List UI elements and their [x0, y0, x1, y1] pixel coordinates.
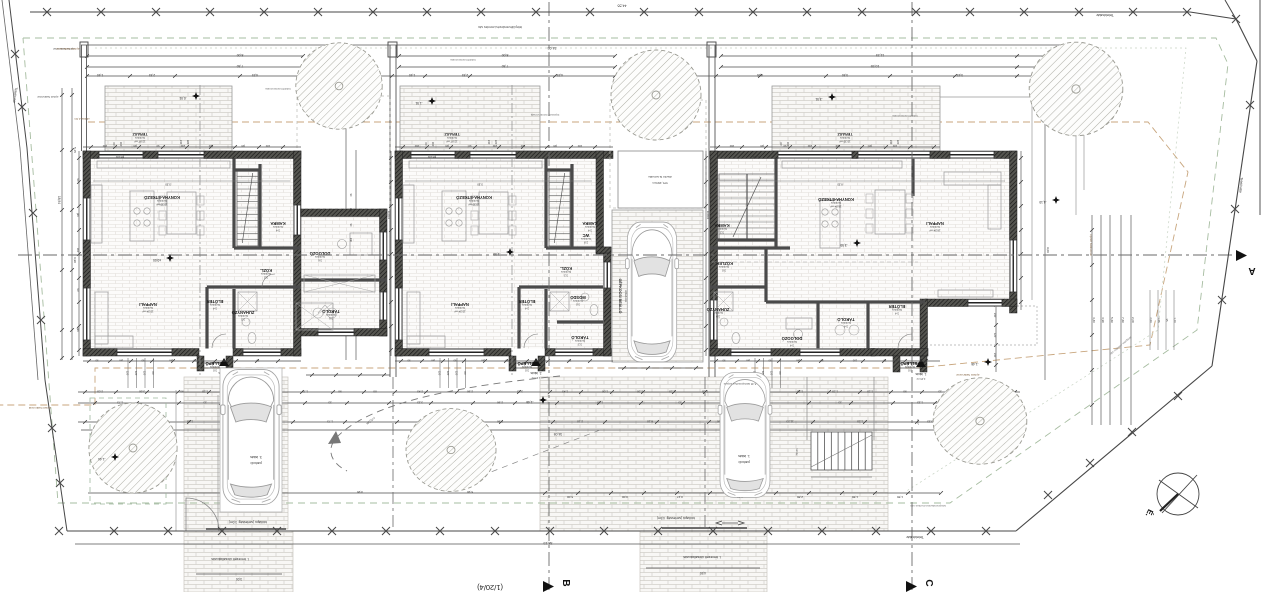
svg-text:1. lakás: 1. lakás [915, 372, 926, 376]
svg-text:tolókapu (szélesség: 4,5m): tolókapu (szélesség: 4,5m) [657, 516, 695, 520]
svg-text:11,25: 11,25 [786, 420, 794, 424]
svg-text:1,00: 1,00 [602, 390, 608, 394]
svg-text:felülről kontúrvonala: felülről kontúrvonala [265, 87, 290, 91]
svg-text:felülről kontúrvonala: felülről kontúrvonala [450, 58, 475, 62]
svg-text:2,00: 2,00 [1131, 317, 1135, 323]
svg-text:150: 150 [455, 371, 459, 376]
svg-text:12,87 m²: 12,87 m² [134, 140, 145, 144]
svg-text:15,54 m²: 15,54 m² [454, 310, 465, 314]
svg-text:6,90: 6,90 [73, 257, 77, 263]
svg-text:2.8: 2.8 [584, 241, 588, 245]
svg-text:1,20: 1,20 [1173, 317, 1177, 323]
svg-text:9,06: 9,06 [1046, 247, 1050, 253]
svg-text:240: 240 [179, 140, 183, 145]
svg-text:pm: pm [760, 144, 764, 147]
svg-text:150: 150 [126, 371, 130, 376]
svg-text:100: 100 [577, 144, 582, 148]
svg-text:kerítés: kerítés [387, 211, 391, 220]
svg-text:35: 35 [1165, 319, 1169, 322]
svg-text:34,05: 34,05 [554, 432, 563, 436]
svg-text:35: 35 [203, 401, 207, 405]
svg-text:felülről kontúrvonala: felülről kontúrvonala [892, 114, 917, 118]
svg-text:1,75: 1,75 [117, 401, 123, 405]
svg-text:2,05: 2,05 [97, 390, 103, 394]
svg-text:35: 35 [938, 390, 942, 394]
svg-text:180: 180 [852, 359, 857, 363]
svg-text:3,00: 3,00 [236, 577, 242, 581]
svg-text:6,17: 6,17 [916, 419, 920, 425]
svg-text:épített határvonal: épített határvonal [28, 406, 51, 410]
svg-text:90: 90 [180, 390, 184, 394]
svg-text:épített határvonal: épített határvonal [37, 95, 58, 99]
svg-text:3,30: 3,30 [842, 73, 848, 77]
svg-text:eltolás+4,0m: eltolás+4,0m [74, 117, 90, 121]
svg-text:pm: pm [119, 359, 123, 362]
svg-text:6,10: 6,10 [647, 420, 653, 424]
svg-text:160: 160 [119, 142, 123, 147]
svg-text:160: 160 [76, 248, 80, 253]
svg-text:2,45: 2,45 [417, 390, 423, 394]
svg-text:240: 240 [349, 208, 352, 213]
svg-text:-1,44: -1,44 [98, 457, 105, 461]
svg-text:-4,10: -4,10 [1039, 200, 1046, 204]
svg-text:TERASZ: TERASZ [444, 132, 460, 136]
svg-text:-3,51: -3,51 [815, 97, 822, 101]
svg-text:-1,46: -1,46 [971, 362, 978, 366]
svg-text:5,30: 5,30 [477, 183, 483, 187]
svg-text:150: 150 [143, 371, 147, 376]
svg-text:3.2: 3.2 [564, 274, 568, 278]
svg-text:parkoló: parkoló [250, 461, 261, 465]
svg-text:3.0: 3.0 [716, 315, 720, 319]
svg-text:C: C [923, 579, 934, 586]
svg-text:220: 220 [896, 140, 900, 145]
svg-text:4,25: 4,25 [557, 73, 563, 77]
svg-text:-0,01: -0,01 [179, 96, 186, 100]
svg-text:3.0: 3.0 [908, 369, 912, 373]
svg-text:3.0: 3.0 [722, 269, 726, 273]
svg-text:3.0: 3.0 [525, 369, 529, 373]
svg-text:pm: pm [553, 144, 557, 147]
svg-text:13,30 m²: 13,30 m² [156, 203, 167, 207]
svg-text:3.4: 3.4 [588, 229, 592, 233]
svg-text:2,35: 2,35 [462, 73, 468, 77]
svg-text:2,90: 2,90 [497, 401, 503, 405]
svg-text:12,87 m²: 12,87 m² [446, 140, 457, 144]
svg-text:3.0: 3.0 [576, 303, 580, 307]
svg-text:I. tervezett útcsatlakozás: I. tervezett útcsatlakozás [211, 557, 249, 561]
svg-text:TERASZ: TERASZ [132, 132, 148, 136]
svg-text:pm 100: pm 100 [427, 155, 436, 158]
svg-text:240: 240 [487, 140, 491, 145]
svg-text:35: 35 [838, 401, 842, 405]
svg-text:3.0: 3.0 [213, 369, 217, 373]
svg-text:2,85: 2,85 [797, 495, 803, 499]
svg-text:1,35 m²: 1,35 m² [531, 376, 540, 380]
svg-text:1,55: 1,55 [832, 390, 838, 394]
svg-text:pm 100: pm 100 [752, 155, 761, 158]
svg-text:160: 160 [431, 142, 435, 147]
svg-text:220: 220 [494, 140, 498, 145]
svg-text:3.6: 3.6 [329, 317, 333, 321]
svg-text:A: A [1248, 265, 1255, 276]
svg-text:7,30: 7,30 [502, 64, 509, 68]
svg-text:3.4: 3.4 [895, 312, 899, 316]
svg-text:240: 240 [993, 313, 997, 318]
svg-text:3,00: 3,00 [622, 495, 628, 499]
svg-text:4,40: 4,40 [1092, 317, 1096, 323]
svg-text:220: 220 [186, 140, 190, 145]
svg-text:GÉPKOCSI BEÁLLÓ: GÉPKOCSI BEÁLLÓ [618, 279, 623, 314]
svg-text:3.2: 3.2 [720, 231, 724, 235]
svg-text:120: 120 [993, 333, 997, 338]
svg-text:3.4: 3.4 [525, 307, 529, 311]
svg-text:1. lakás: 1. lakás [738, 454, 750, 458]
svg-text:3,17: 3,17 [677, 495, 683, 499]
svg-text:pm: pm [76, 213, 79, 217]
svg-text:1,05: 1,05 [1157, 317, 1161, 323]
svg-text:3.4: 3.4 [844, 325, 848, 329]
svg-text:diszíto fa temelde: diszíto fa temelde [648, 175, 672, 179]
svg-text:3,45: 3,45 [957, 73, 963, 77]
svg-text:1,35: 1,35 [202, 390, 208, 394]
svg-text:B: B [560, 579, 571, 586]
svg-text:38,15: 38,15 [544, 541, 553, 545]
svg-text:pm: pm [169, 359, 173, 362]
svg-text:teleprendezési-mentes sáv: teleprendezési-mentes sáv [910, 504, 946, 508]
svg-text:5,60: 5,60 [1110, 317, 1114, 323]
svg-text:575, Ø15cm: 575, Ø15cm [652, 181, 668, 185]
svg-text:3.6: 3.6 [318, 259, 322, 263]
svg-text:-1,46: -1,46 [526, 400, 533, 404]
svg-text:2. lakás: 2. lakás [530, 371, 541, 375]
svg-text:240: 240 [492, 144, 497, 148]
svg-text:pm: pm [241, 144, 245, 147]
svg-text:pm 100: pm 100 [115, 155, 124, 158]
svg-text:35: 35 [328, 401, 332, 405]
svg-text:pm: pm [868, 144, 872, 147]
svg-text:2,90: 2,90 [467, 390, 473, 394]
svg-text:1,55: 1,55 [857, 420, 863, 424]
svg-text:8,00: 8,00 [237, 53, 244, 57]
svg-text:44,55: 44,55 [618, 4, 627, 8]
svg-text:98: 98 [338, 390, 342, 394]
svg-text:160: 160 [102, 144, 107, 148]
svg-text:35: 35 [678, 401, 682, 405]
svg-text:11,25: 11,25 [876, 53, 884, 57]
svg-text:3.2: 3.2 [264, 276, 268, 280]
svg-text:1,55: 1,55 [852, 495, 858, 499]
svg-text:építési határvonal: építési határvonal [56, 47, 79, 51]
svg-text:3.4: 3.4 [790, 344, 794, 348]
svg-text:15,54 m²: 15,54 m² [142, 310, 153, 314]
svg-text:3,60: 3,60 [139, 390, 145, 394]
svg-text:240: 240 [889, 140, 893, 145]
svg-text:3,25: 3,25 [417, 401, 423, 405]
svg-text:240: 240 [349, 238, 352, 243]
svg-text:240: 240 [993, 353, 997, 358]
svg-text:3. lakás: 3. lakás [250, 455, 262, 459]
svg-text:I. tervezett útcsatlakozás: I. tervezett útcsatlakozás [683, 555, 721, 559]
svg-text:TERASZ: TERASZ [837, 132, 853, 136]
svg-text:3.2: 3.2 [241, 318, 245, 322]
svg-text:8,00: 8,00 [502, 53, 509, 57]
svg-text:3.4: 3.4 [276, 229, 280, 233]
svg-text:2,00: 2,00 [1149, 317, 1153, 323]
svg-text:150: 150 [770, 371, 774, 376]
svg-text:13,30 m²: 13,30 m² [468, 203, 479, 207]
svg-text:240: 240 [180, 144, 185, 148]
svg-text:Telekhatár: Telekhatár [1096, 13, 1114, 17]
svg-text:tornác: tornác [795, 448, 799, 456]
svg-text:pm: pm [746, 359, 750, 362]
svg-text:7,60: 7,60 [1121, 317, 1125, 323]
svg-text:100: 100 [265, 144, 270, 148]
svg-text:15,35 m²: 15,35 m² [839, 140, 850, 144]
svg-text:240: 240 [807, 144, 812, 148]
svg-text:150: 150 [438, 371, 442, 376]
svg-text:160: 160 [786, 142, 790, 147]
svg-text:8,35: 8,35 [837, 183, 843, 187]
svg-text:160: 160 [729, 144, 734, 148]
svg-text:1,40: 1,40 [409, 73, 415, 77]
svg-text:-1,51: -1,51 [415, 101, 422, 105]
svg-text:120: 120 [134, 371, 138, 376]
svg-text:4,90: 4,90 [1101, 317, 1105, 323]
svg-text:épített határvonal: épített határvonal [1089, 234, 1093, 256]
svg-text:120: 120 [446, 371, 450, 376]
svg-text:1,40: 1,40 [97, 73, 103, 77]
svg-text:16,84 m²: 16,84 m² [830, 205, 841, 209]
svg-text:pm: pm [481, 359, 485, 362]
svg-text:1,75: 1,75 [327, 420, 333, 424]
svg-text:pm: pm [445, 144, 449, 147]
svg-text:3.2: 3.2 [578, 343, 582, 347]
svg-text:-3,50: -3,50 [840, 243, 847, 247]
svg-text:3.4: 3.4 [213, 307, 217, 311]
svg-text:településrendezési-mentes sáv: településrendezési-mentes sáv [478, 25, 522, 29]
svg-text:2,35: 2,35 [149, 73, 155, 77]
svg-text:építési határvonal: építési határvonal [956, 373, 979, 377]
svg-text:1,05: 1,05 [702, 390, 708, 394]
svg-text:1,55: 1,55 [897, 495, 903, 499]
svg-text:2,10: 2,10 [577, 420, 583, 424]
svg-text:4,50: 4,50 [700, 571, 706, 575]
svg-text:5,00: 5,00 [567, 495, 573, 499]
svg-text:5,45 lakóépülethez képest: 5,45 lakóépülethez képest [724, 382, 757, 386]
svg-text:-1,50: -1,50 [493, 252, 500, 256]
svg-text:lopostélyi kontúrvonala: lopostélyi kontúrvonala [530, 113, 559, 117]
svg-text:18,54 m²: 18,54 m² [929, 229, 940, 233]
svg-text:5,90: 5,90 [467, 490, 473, 494]
svg-text:2,45 m²: 2,45 m² [916, 377, 925, 381]
svg-text:10,55: 10,55 [871, 64, 880, 68]
svg-text:80: 80 [373, 390, 377, 394]
svg-text:kerítés: kerítés [706, 211, 710, 220]
svg-text:±0,00: ±0,00 [153, 258, 161, 262]
svg-text:(1/20/4): (1/20/4) [477, 583, 503, 592]
svg-text:1,45: 1,45 [562, 390, 568, 394]
svg-text:5,30: 5,30 [165, 183, 171, 187]
svg-text:100: 100 [892, 144, 897, 148]
svg-text:tolókapu (szélesség: 3,0m): tolókapu (szélesség: 3,0m) [229, 520, 267, 524]
svg-text:1,25: 1,25 [917, 401, 923, 405]
svg-text:180: 180 [225, 359, 230, 363]
svg-text:pm: pm [796, 359, 800, 362]
svg-text:1,35: 1,35 [867, 390, 873, 394]
svg-text:pm: pm [133, 144, 137, 147]
svg-text:pm: pm [76, 328, 79, 332]
svg-text:90: 90 [903, 390, 907, 394]
svg-text:3,25: 3,25 [927, 420, 933, 424]
svg-text:pm: pm [431, 359, 435, 362]
svg-text:180: 180 [537, 359, 542, 363]
svg-text:parkoló: parkoló [738, 460, 749, 464]
svg-text:160: 160 [414, 144, 419, 148]
svg-text:Telekhatár: Telekhatár [906, 535, 924, 539]
svg-text:4,25: 4,25 [252, 73, 258, 77]
svg-text:7,30: 7,30 [237, 64, 244, 68]
svg-text:18,94: 18,94 [57, 196, 61, 204]
svg-text:3,95: 3,95 [357, 490, 363, 494]
